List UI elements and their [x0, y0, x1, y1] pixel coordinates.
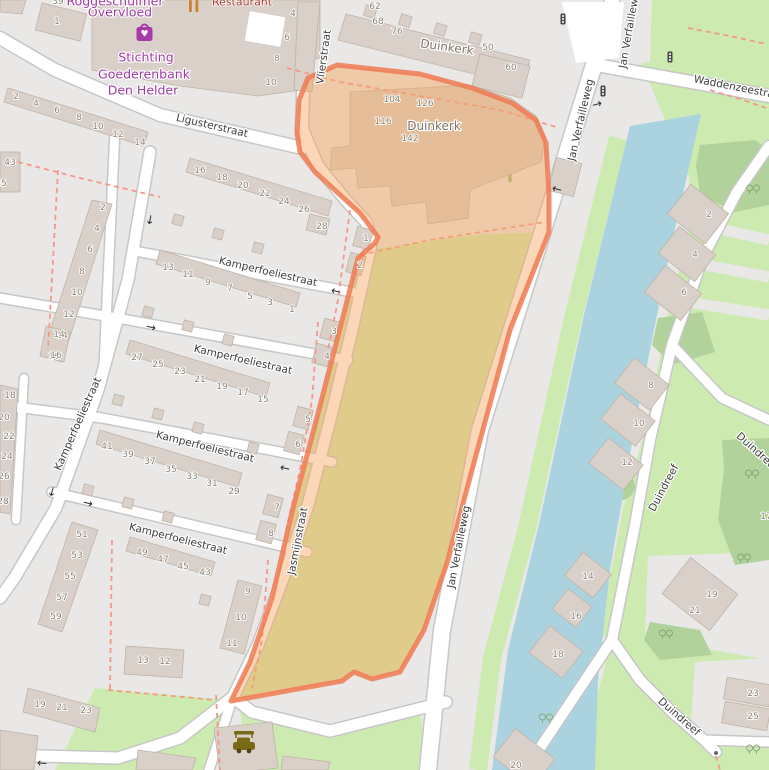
house-number: 41	[101, 442, 112, 452]
house-number: 39	[122, 450, 134, 460]
poi-label-restaurant-clipped: Restaurant	[212, 0, 273, 9]
house-number: 37	[144, 457, 155, 467]
house-number: 43	[4, 158, 15, 168]
house-number: 22	[3, 432, 14, 442]
house-number: 19	[34, 700, 46, 710]
house-number: 10	[633, 419, 645, 429]
house-number: 6	[295, 440, 301, 450]
house-number: 43	[199, 568, 210, 578]
house-number: 33	[186, 472, 197, 482]
house-number: 15	[257, 395, 268, 405]
house-number: 51	[76, 530, 87, 540]
house-number: 20	[510, 761, 522, 770]
house-number: 126	[416, 99, 433, 109]
house-number: 12	[63, 310, 74, 320]
house-number: 6	[284, 33, 290, 43]
poi-label-stichting-line1: Stichting	[118, 50, 173, 65]
house-number: 2	[357, 261, 363, 271]
house-number: 7	[227, 284, 233, 294]
house-number: 25	[747, 712, 758, 722]
house-number: 20	[237, 181, 249, 191]
house-number: 4	[33, 99, 39, 109]
house-number: 8	[79, 267, 85, 277]
house-number: 5	[247, 292, 253, 302]
area-label-duinkerk-selected: Duinkerk	[407, 119, 461, 133]
house-number: 2	[13, 92, 19, 102]
house-number: 18	[216, 173, 228, 183]
house-number: 14	[134, 138, 146, 148]
house-number: 1	[363, 234, 369, 244]
car-wash-icon	[233, 731, 255, 753]
house-number: 23	[174, 367, 185, 377]
house-number: 24	[278, 197, 290, 207]
house-number: 27	[131, 353, 142, 363]
house-number: 17	[760, 512, 769, 522]
traffic-signal-icon	[668, 52, 673, 63]
house-number: 62	[369, 2, 380, 12]
house-number: 4	[290, 9, 296, 19]
house-number: 20	[0, 413, 10, 423]
house-number: 11	[226, 639, 237, 649]
house-number: 25	[152, 360, 163, 370]
house-number: 10	[71, 288, 83, 298]
house-number: 4	[324, 352, 330, 362]
house-number: 76	[391, 27, 403, 37]
house-number: 4	[692, 250, 698, 260]
map-canvas[interactable]: ♥ LigusterstraatVlierstraatKamperfoelies…	[0, 0, 769, 770]
house-number: 22	[259, 189, 270, 199]
house-number: 1	[289, 305, 295, 315]
house-number: 49	[136, 548, 148, 558]
house-number: 14	[53, 330, 65, 340]
house-number: 53	[71, 551, 82, 561]
house-number: 6	[87, 245, 93, 255]
house-number: 116	[374, 117, 391, 127]
house-number: 39	[52, 0, 64, 7]
house-number: 8	[268, 529, 274, 539]
house-number: 21	[194, 375, 205, 385]
house-number: 68	[372, 17, 384, 27]
house-number: 16	[194, 166, 206, 176]
house-number: 7	[274, 503, 280, 513]
house-number: 17	[237, 388, 248, 398]
house-number: 50	[482, 43, 494, 53]
house-number: 21	[689, 606, 700, 616]
house-number: 29	[228, 487, 240, 497]
house-number: 26	[0, 472, 10, 482]
house-number: 19	[216, 382, 228, 392]
house-number: 13	[137, 656, 148, 666]
house-number: 12	[159, 657, 170, 667]
house-number: 6	[54, 106, 60, 116]
house-number: 9	[245, 587, 251, 597]
house-number: 5	[305, 415, 311, 425]
house-number: 2	[100, 203, 106, 213]
house-number: 8	[76, 113, 82, 123]
house-number: 4	[94, 224, 100, 234]
house-number: 11	[182, 270, 193, 280]
house-number: 57	[56, 593, 67, 603]
house-number: 104	[383, 95, 400, 105]
house-number: 28	[0, 497, 9, 507]
house-number: 12	[112, 130, 123, 140]
house-number: 47	[157, 555, 168, 565]
house-number: 3	[331, 327, 337, 337]
house-number: 9	[205, 278, 211, 288]
oneway-arrow: ←	[36, 756, 47, 770]
house-number: 1	[54, 17, 60, 27]
house-number: 6	[681, 288, 687, 298]
house-number: 14	[582, 572, 594, 582]
svg-text:♥: ♥	[140, 30, 148, 40]
house-number: 18	[552, 650, 564, 660]
house-number: 31	[206, 479, 217, 489]
house-number: 16	[50, 351, 62, 361]
house-number: 8	[648, 381, 654, 391]
house-number: 23	[80, 706, 91, 716]
house-number: 28	[316, 222, 328, 232]
house-number: 3	[267, 298, 273, 308]
house-number: 8	[274, 54, 280, 64]
house-number: 60	[505, 63, 517, 73]
house-number: 45	[177, 562, 188, 572]
poi-label-stichting-line3: Den Helder	[108, 83, 179, 98]
house-number: 10	[265, 78, 277, 88]
traffic-signal-icon	[601, 86, 606, 97]
house-number: 18	[4, 391, 16, 401]
house-number: 55	[64, 572, 75, 582]
house-number: 10	[235, 613, 247, 623]
house-number: 26	[298, 205, 310, 215]
house-number: 10	[92, 122, 104, 132]
house-number: 59	[50, 612, 62, 622]
traffic-signal-icon	[561, 14, 566, 25]
poi-label-overvloed-line1-clipped: Roggeschuimer	[66, 0, 164, 9]
house-number: 24	[1, 452, 13, 462]
poi-label-stichting-line2: Goederenbank	[98, 67, 191, 82]
bollard-icon	[714, 751, 718, 755]
house-number: 2	[706, 210, 712, 220]
house-number: 142	[401, 134, 418, 144]
house-number: 19	[706, 590, 718, 600]
house-number: 21	[56, 703, 67, 713]
house-number: 45	[0, 179, 7, 189]
house-number: 16	[570, 612, 582, 622]
house-number: 12	[621, 458, 632, 468]
house-number: 13	[162, 263, 173, 273]
house-number: 23	[747, 689, 758, 699]
map-viewport[interactable]: ♥ LigusterstraatVlierstraatKamperfoelies…	[0, 0, 769, 770]
house-number: 35	[165, 465, 176, 475]
